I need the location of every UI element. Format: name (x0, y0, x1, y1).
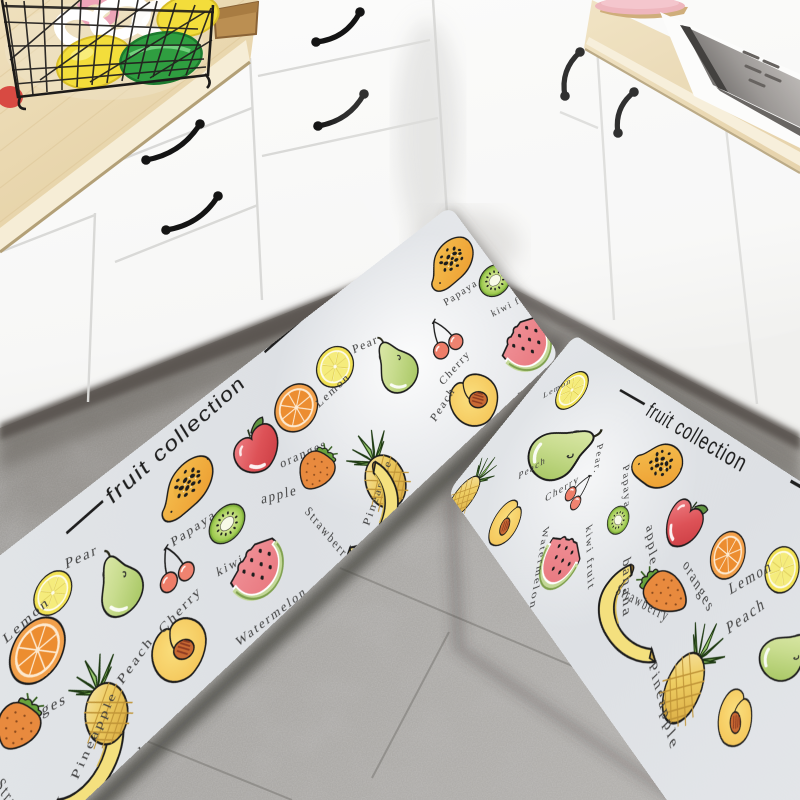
svg-text:Peach: Peach (114, 633, 156, 687)
svg-text:Strawberry: Strawberry (0, 774, 48, 800)
svg-text:Pear: Pear (351, 332, 380, 356)
svg-text:Papaya: Papaya (621, 462, 633, 511)
svg-text:Pear.: Pear. (591, 442, 605, 476)
svg-text:kiwi fruit: kiwi fruit (583, 522, 597, 594)
svg-text:apple: apple (261, 482, 298, 508)
svg-text:Pear: Pear (65, 540, 99, 572)
svg-text:Peach: Peach (725, 593, 768, 639)
svg-text:apple: apple (644, 521, 662, 570)
